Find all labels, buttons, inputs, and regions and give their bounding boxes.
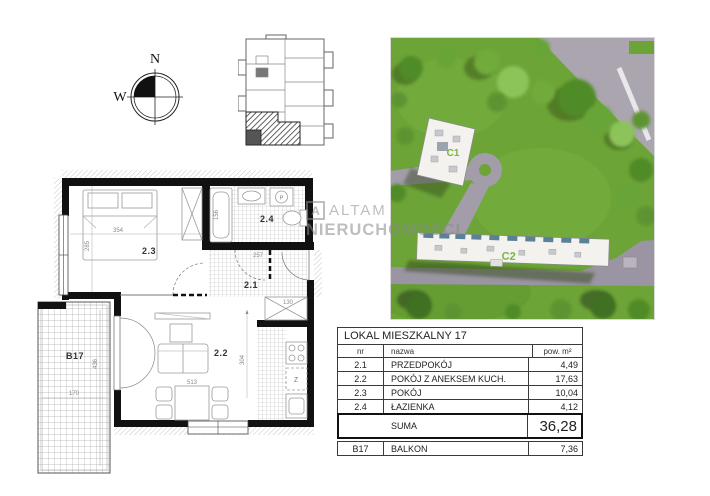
area-table: LOKAL MIESZKALNY 17 nr nazwa pow. m² 2.1… — [337, 327, 583, 456]
suma-row: SUMA 36,28 — [337, 413, 583, 439]
wardrobe — [182, 188, 202, 240]
bedroom-label: 2.3 — [142, 246, 156, 256]
stove — [286, 342, 307, 364]
balcony-label: B17 — [66, 351, 84, 361]
cell-area: 4,12 — [529, 400, 582, 413]
washer-label: P — [280, 196, 284, 202]
dim-bathtub: 156 — [214, 209, 220, 220]
agency-logo-icon: A — [306, 201, 325, 220]
table-row: 2.4 ŁAZIENKA 4,12 — [337, 399, 583, 414]
dim-balcony-height: 436 — [93, 358, 99, 369]
dim-hall: 257 — [253, 253, 264, 259]
coffee-table — [170, 324, 192, 342]
agency-watermark: A ALTAM NIERUCHOMOŚCI — [306, 201, 461, 239]
dining-table — [175, 386, 209, 420]
living-label: 2.2 — [214, 348, 228, 358]
area-table-header: nr nazwa pow. m² — [337, 344, 583, 358]
cell-name: PRZEDPOKÓJ — [384, 358, 529, 371]
bedroom-door-arc — [173, 263, 205, 295]
toilet — [283, 211, 301, 225]
col-header-name: nazwa — [384, 345, 533, 357]
building-key-plan — [238, 34, 334, 152]
balcony-door — [114, 316, 155, 390]
floor-plan-sheet: N W — [0, 0, 710, 496]
chair — [156, 387, 172, 401]
living-room: 2.2 513 304 — [155, 310, 249, 420]
area-table-title: LOKAL MIESZKALNY 17 — [337, 327, 583, 345]
compass-north-west-sector — [134, 76, 155, 97]
building-c1-label: C1 — [447, 148, 460, 159]
fridge-label: Z — [294, 377, 299, 384]
kitchen-annex: Z — [286, 342, 307, 418]
balcony: B17 170 436 — [38, 302, 110, 473]
dim-bedroom-width: 354 — [113, 228, 124, 234]
dim-living-height: 304 — [240, 354, 246, 365]
dim-living-width: 513 — [187, 380, 198, 386]
cell-name: POKÓJ — [384, 386, 529, 399]
cell-nr: 2.2 — [338, 372, 384, 385]
table-row: 2.1 PRZEDPOKÓJ 4,49 — [337, 357, 583, 372]
compass-rose: N W — [100, 45, 210, 145]
cell-name: ŁAZIENKA — [384, 400, 529, 413]
cell-area: 4,49 — [529, 358, 582, 371]
col-header-nr: nr — [338, 345, 384, 357]
col-header-area: pow. m² — [533, 345, 582, 357]
compass-north-label: N — [150, 52, 160, 67]
site-aerial-view: C2 C1 — [390, 37, 655, 320]
chair — [212, 387, 228, 401]
agency-name-line2: NIERUCHOMOŚCI — [306, 222, 461, 239]
cell-name: POKÓJ Z ANEKSEM KUCH. — [384, 372, 529, 385]
chair — [212, 405, 228, 419]
cell-nr: B17 — [338, 442, 384, 455]
agency-name: ALTAM — [329, 203, 387, 218]
kitchen-floor — [258, 327, 286, 420]
dim-balcony-width: 170 — [69, 391, 80, 397]
cell-nr: 2.1 — [338, 358, 384, 371]
bedroom-window — [59, 215, 68, 295]
cell-area: 17,63 — [529, 372, 582, 385]
living-window — [188, 421, 248, 434]
dim-bedroom-height: 285 — [85, 240, 91, 251]
building-c2-label: C2 — [501, 251, 515, 263]
cell-name: BALKON — [384, 442, 529, 455]
bathroom-label: 2.4 — [260, 214, 274, 224]
cell-area: 7,36 — [529, 442, 582, 455]
table-row: 2.3 POKÓJ 10,04 — [337, 385, 583, 400]
suma-label: SUMA — [384, 415, 528, 437]
cell-nr: 2.4 — [338, 400, 384, 413]
dim-closet: 130 — [283, 300, 294, 306]
hall-label: 2.1 — [244, 280, 258, 290]
suma-value: 36,28 — [528, 415, 581, 437]
balkon-row: B17 BALKON 7,36 — [337, 441, 583, 456]
table-row: 2.2 POKÓJ Z ANEKSEM KUCH. 17,63 — [337, 371, 583, 386]
cell-nr: 2.3 — [338, 386, 384, 399]
compass-west-label: W — [113, 90, 127, 105]
apartment-floor-plan: B17 170 436 — [30, 158, 322, 484]
chair — [156, 405, 172, 419]
cell-area: 10,04 — [529, 386, 582, 399]
